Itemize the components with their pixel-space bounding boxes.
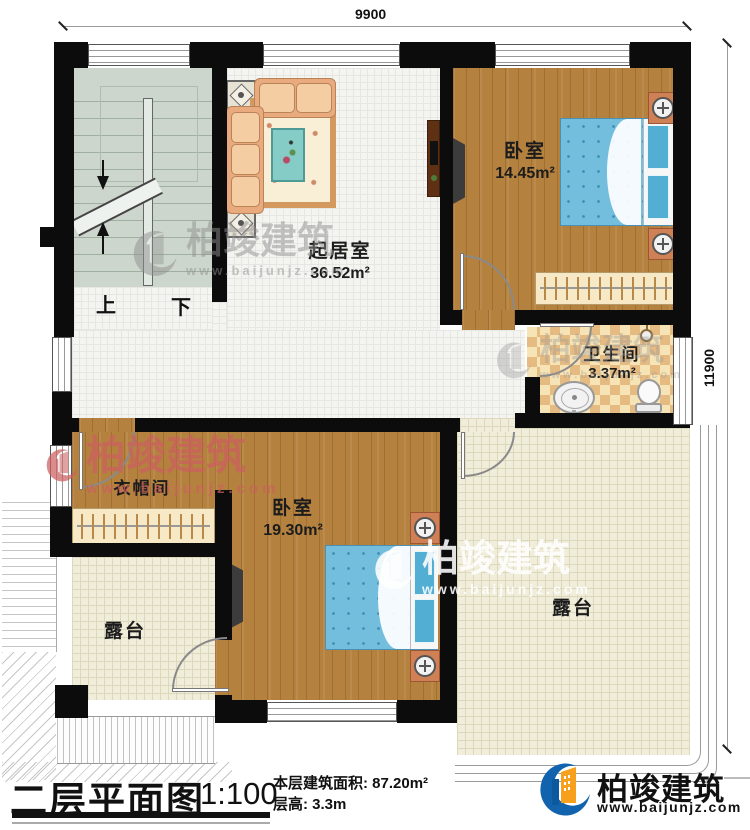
wall bbox=[230, 700, 267, 723]
sofa-back bbox=[254, 78, 336, 118]
cloakroom-door-gap bbox=[79, 418, 135, 432]
window bbox=[88, 44, 190, 66]
sofa-cushion bbox=[231, 112, 260, 143]
dimension-width: 9900 bbox=[352, 6, 389, 22]
dimension-height: 11900 bbox=[701, 325, 717, 411]
wall bbox=[215, 557, 232, 640]
room-label-bedroom1: 卧室 14.45m² bbox=[465, 140, 585, 184]
room-name: 卧室 bbox=[465, 140, 585, 164]
lamp-dot bbox=[238, 92, 244, 98]
wall bbox=[54, 42, 74, 337]
roof-hatch bbox=[2, 652, 56, 780]
coffee-table bbox=[271, 128, 305, 182]
plant-icon bbox=[431, 175, 437, 181]
wall bbox=[400, 42, 495, 68]
room-label-cloakroom: 衣帽间 bbox=[100, 478, 184, 499]
room-name: 衣帽间 bbox=[100, 478, 184, 499]
wall bbox=[525, 377, 540, 415]
wardrobe bbox=[72, 508, 215, 545]
hangers-icon bbox=[544, 277, 668, 300]
tv-icon bbox=[231, 564, 243, 628]
room-area: 36.52m² bbox=[285, 264, 395, 284]
bathroom-door-gap bbox=[527, 327, 540, 377]
hallway-floor bbox=[72, 330, 525, 418]
shower-head-icon bbox=[640, 329, 653, 342]
wardrobe bbox=[535, 272, 677, 305]
sink-drain bbox=[572, 395, 577, 400]
wall bbox=[673, 42, 691, 337]
column bbox=[55, 685, 88, 718]
window bbox=[263, 44, 400, 66]
window bbox=[495, 44, 630, 66]
wall bbox=[54, 418, 79, 432]
wall bbox=[440, 432, 457, 713]
dimension-line-right bbox=[727, 44, 728, 750]
stair-direction-arrow bbox=[97, 222, 109, 236]
toilet-tank bbox=[635, 403, 662, 413]
room-area: 14.45m² bbox=[465, 164, 585, 184]
room-name: 卧室 bbox=[238, 497, 348, 521]
window bbox=[673, 337, 693, 425]
plan-info: 本层建筑面积: 87.20m² 层高: 3.3m bbox=[273, 773, 428, 815]
terrace-left-railing bbox=[57, 716, 215, 764]
lamp-icon bbox=[414, 655, 436, 677]
tv-cabinet bbox=[427, 120, 440, 197]
built-area: 本层建筑面积: 87.20m² bbox=[273, 773, 428, 794]
room-label-terrace-left: 露台 bbox=[90, 620, 160, 644]
roof-hatch bbox=[2, 502, 57, 652]
lamp-icon bbox=[652, 233, 674, 255]
dimension-line-top bbox=[62, 26, 688, 27]
door-panel bbox=[460, 253, 464, 310]
room-label-terrace-right: 露台 bbox=[533, 597, 613, 621]
title-underline bbox=[12, 812, 270, 818]
brand-logo-icon bbox=[536, 760, 594, 818]
door-panel bbox=[79, 432, 83, 490]
room-name: 卫生间 bbox=[562, 344, 662, 365]
door-panel bbox=[540, 323, 594, 327]
room-name: 露台 bbox=[90, 620, 160, 644]
room-area: 19.30m² bbox=[238, 521, 348, 541]
stair-arrow-line bbox=[102, 236, 104, 254]
sofa-cushion bbox=[231, 144, 260, 175]
sofa-left-arm bbox=[226, 106, 264, 214]
wall bbox=[190, 42, 263, 68]
room-area: 3.37m² bbox=[562, 365, 662, 384]
brand-url: www.baijunjz.com bbox=[597, 799, 742, 815]
window bbox=[52, 337, 72, 392]
door-panel bbox=[461, 432, 465, 479]
wall bbox=[215, 490, 232, 557]
window bbox=[267, 702, 397, 722]
room-name: 露台 bbox=[533, 597, 613, 621]
hallway-floor bbox=[74, 287, 212, 330]
bedroom1-door-gap bbox=[462, 310, 515, 330]
wall bbox=[440, 68, 453, 310]
window bbox=[50, 445, 72, 507]
hallway-floor bbox=[212, 302, 227, 330]
wall bbox=[212, 68, 227, 302]
hangers-icon bbox=[81, 514, 206, 539]
room-name: 起居室 bbox=[285, 240, 395, 264]
plan-scale: 1:100 bbox=[200, 776, 278, 812]
wall bbox=[515, 413, 690, 428]
pillow bbox=[647, 125, 669, 169]
sofa-cushion bbox=[259, 83, 295, 113]
floor-plan: 上 下 bbox=[0, 0, 750, 830]
lamp-icon bbox=[414, 517, 436, 539]
pillow bbox=[647, 175, 669, 219]
wall-pier bbox=[40, 227, 60, 247]
nightstand bbox=[410, 650, 440, 682]
floor-height: 层高: 3.3m bbox=[273, 794, 428, 815]
tv-icon bbox=[430, 141, 438, 165]
lamp-dot bbox=[238, 220, 244, 226]
stair-up-label: 上 bbox=[96, 289, 116, 318]
title-underline-thin bbox=[12, 822, 270, 824]
brand-divider-line bbox=[724, 777, 750, 779]
tv-icon bbox=[453, 138, 465, 204]
bed-blanket-fold bbox=[607, 119, 641, 225]
wall bbox=[54, 543, 232, 557]
room-label-bedroom2: 卧室 19.30m² bbox=[238, 497, 348, 541]
wall bbox=[440, 310, 462, 325]
lamp-icon bbox=[652, 97, 674, 119]
wall bbox=[135, 418, 460, 432]
stair-arrow-line bbox=[102, 160, 104, 178]
pillow bbox=[414, 599, 435, 643]
bed bbox=[325, 545, 438, 650]
room-label-living: 起居室 36.52m² bbox=[285, 240, 395, 284]
stair-down-label: 下 bbox=[171, 291, 191, 320]
nightstand bbox=[410, 512, 440, 544]
door-panel bbox=[172, 688, 229, 692]
sofa-cushion bbox=[231, 176, 260, 207]
bed-blanket-fold bbox=[378, 546, 410, 649]
room-label-bathroom: 卫生间 3.37m² bbox=[562, 344, 662, 384]
pillow bbox=[414, 551, 435, 595]
sofa-cushion bbox=[296, 83, 332, 113]
stair-direction-arrow bbox=[97, 176, 109, 190]
